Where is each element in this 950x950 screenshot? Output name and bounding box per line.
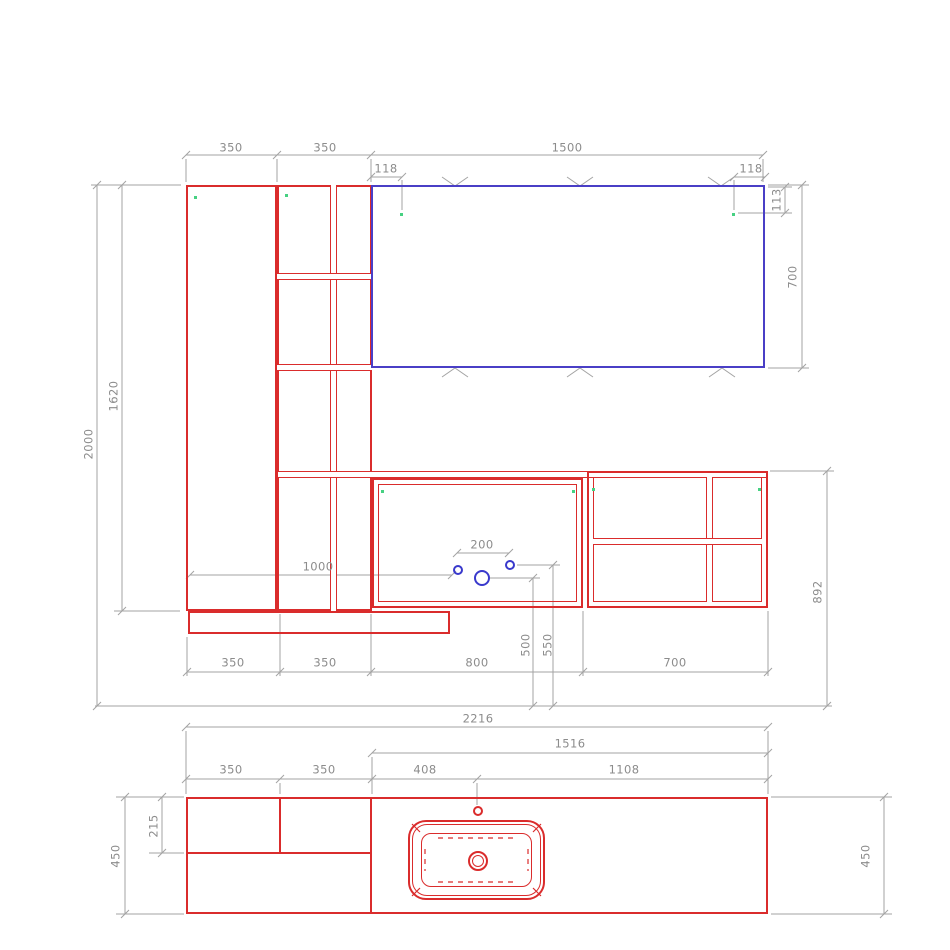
fixing-marker [400, 213, 403, 216]
dim-label-supply-height: 550 [542, 633, 554, 656]
water-supply-point-right [505, 560, 515, 570]
dim-plan-450-right [771, 793, 892, 918]
plan-left-divider [279, 797, 281, 854]
fixing-marker [758, 488, 761, 491]
water-supply-point-left [453, 565, 463, 575]
dim-label-vanity-width: 800 [465, 657, 488, 669]
dim-label-marker-inset-top: 113 [771, 188, 783, 211]
dim-label-plan-left-unit-width: 350 [219, 764, 242, 776]
dim-label-shelf-unit-width: 350 [313, 142, 336, 154]
plinth [188, 611, 450, 634]
dim-label-plan-total-width: 2216 [463, 713, 494, 725]
dim-892 [770, 467, 834, 710]
fixing-marker [285, 194, 288, 197]
plan-shelf-edge [186, 852, 372, 854]
dim-label-plan-depth-right: 450 [860, 844, 872, 867]
dim-label-drain-height: 500 [520, 633, 532, 656]
dim-label-plan-shelf-depth: 215 [148, 814, 160, 837]
fixing-marker [572, 490, 575, 493]
dim-label-plan-tap-offset: 1108 [609, 764, 640, 776]
dim-plan-450-left [116, 793, 184, 918]
dim-label-worktop-height: 892 [812, 580, 824, 603]
dim-label-supply-spacing: 200 [470, 539, 493, 551]
dim-label-bottom-left-unit-width: 350 [221, 657, 244, 669]
drain-connection-point [474, 570, 490, 586]
drain-inner [472, 855, 484, 867]
fixing-marker [381, 490, 384, 493]
dim-label-plan-depth-left: 450 [110, 844, 122, 867]
dim-label-plumbing-x: 1000 [303, 561, 334, 573]
plan-column-edge [370, 797, 372, 914]
dim-label-left-unit-width: 350 [219, 142, 242, 154]
dim-label-bottom-shelf-unit-width: 350 [313, 657, 336, 669]
cad-drawing-canvas: 350 350 1500 118 118 113 700 2000 1620 1… [0, 0, 950, 950]
dim-label-mirror-inset-left: 118 [374, 163, 397, 175]
fixing-marker [592, 488, 595, 491]
open-shelf-column [277, 185, 372, 611]
dim-label-plan-shelf-unit-width: 350 [312, 764, 335, 776]
dim-label-plan-counter-width: 1516 [555, 738, 586, 750]
mirror [371, 185, 765, 368]
dim-label-mirror-height: 700 [787, 265, 799, 288]
shelf-middle [277, 364, 372, 371]
fixing-marker [732, 213, 735, 216]
dim-label-column-height: 1620 [108, 381, 120, 412]
dim-label-mirror-width: 1500 [552, 142, 583, 154]
dim-elevation-top [182, 151, 767, 182]
dim-label-plan-basin-offset: 408 [413, 764, 436, 776]
dim-label-mirror-inset-right: 118 [739, 163, 762, 175]
tall-cabinet [186, 185, 277, 611]
wall-unit-shelf [593, 538, 762, 545]
tap-hole [473, 806, 483, 816]
dim-1620 [114, 181, 180, 615]
shelf-top [277, 273, 372, 280]
dim-label-wall-unit-width: 700 [663, 657, 686, 669]
fixing-marker [194, 196, 197, 199]
dim-2000 [91, 181, 181, 710]
dim-label-total-height: 2000 [83, 429, 95, 460]
shelf-column-partition [330, 185, 337, 611]
